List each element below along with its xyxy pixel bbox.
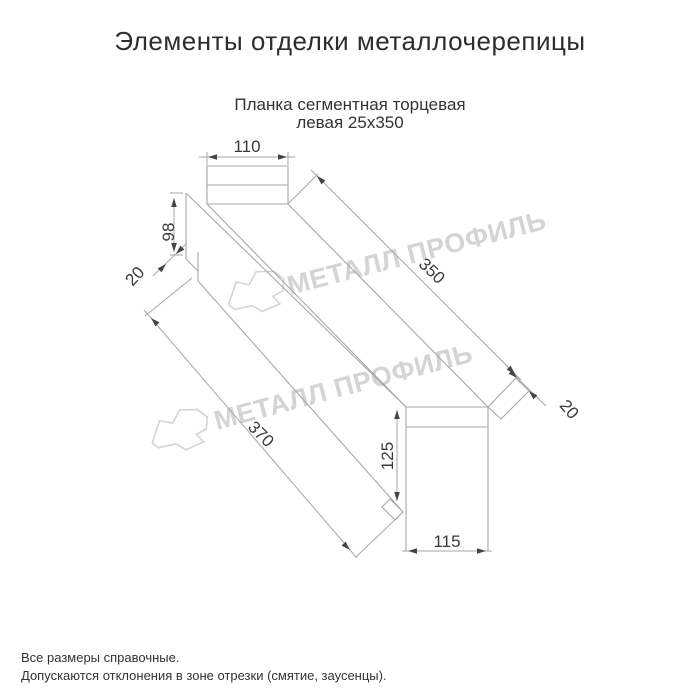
arrow-icon [171,198,177,207]
dimension-label-20-right: 20 [556,396,583,423]
arrow-icon [151,318,159,326]
dimension-labels: 110 98 20 350 370 20 125 115 [122,137,583,551]
metal-profil-logo-icon [222,265,290,319]
page: Элементы отделки металлочерепицы Планка … [0,0,700,700]
dimension-label-98: 98 [159,223,178,242]
arrow-icon [477,548,486,554]
arrow-icon [278,154,287,160]
dimension-label-20-left: 20 [122,263,149,290]
arrow-icon [408,548,417,554]
long-edge-4 [198,281,403,512]
dimension-lines [144,152,546,558]
footer-note-1: Все размеры справочные. [21,649,387,667]
arrow-icon [529,391,537,399]
dimension-arrows [151,154,537,554]
dimension-label-125: 125 [378,442,397,470]
long-edge-1 [186,193,406,407]
dimension-label-110: 110 [233,137,260,156]
arrow-icon [394,492,400,501]
dim-370-ext2 [356,512,403,557]
metal-profil-logo-icon [146,404,214,458]
footer-notes: Все размеры справочные. Допускаются откл… [21,649,387,685]
bottom-left-corner-fold [382,499,403,520]
footer-note-2: Допускаются отклонения в зоне отрезки (с… [21,667,387,685]
watermark-text: МЕТАЛЛ ПРОФИЛЬ [284,205,549,301]
watermark-1: МЕТАЛЛ ПРОФИЛЬ [222,198,550,319]
arrow-icon [171,243,177,252]
dim-350-ext [288,174,318,204]
arrow-icon [208,154,217,160]
watermark-text: МЕТАЛЛ ПРОФИЛЬ [211,338,476,436]
arrow-icon [158,264,166,272]
technical-drawing: МЕТАЛЛ ПРОФИЛЬ МЕТАЛЛ ПРОФИЛЬ [0,0,700,700]
arrow-icon [394,410,400,419]
watermark-2: МЕТАЛЛ ПРОФИЛЬ [146,333,477,458]
bottom-end-face [406,407,488,551]
left-fold-link [186,259,198,271]
dim-370-ext1 [145,278,192,316]
dimension-label-115: 115 [433,532,460,551]
arrow-icon [342,542,350,550]
